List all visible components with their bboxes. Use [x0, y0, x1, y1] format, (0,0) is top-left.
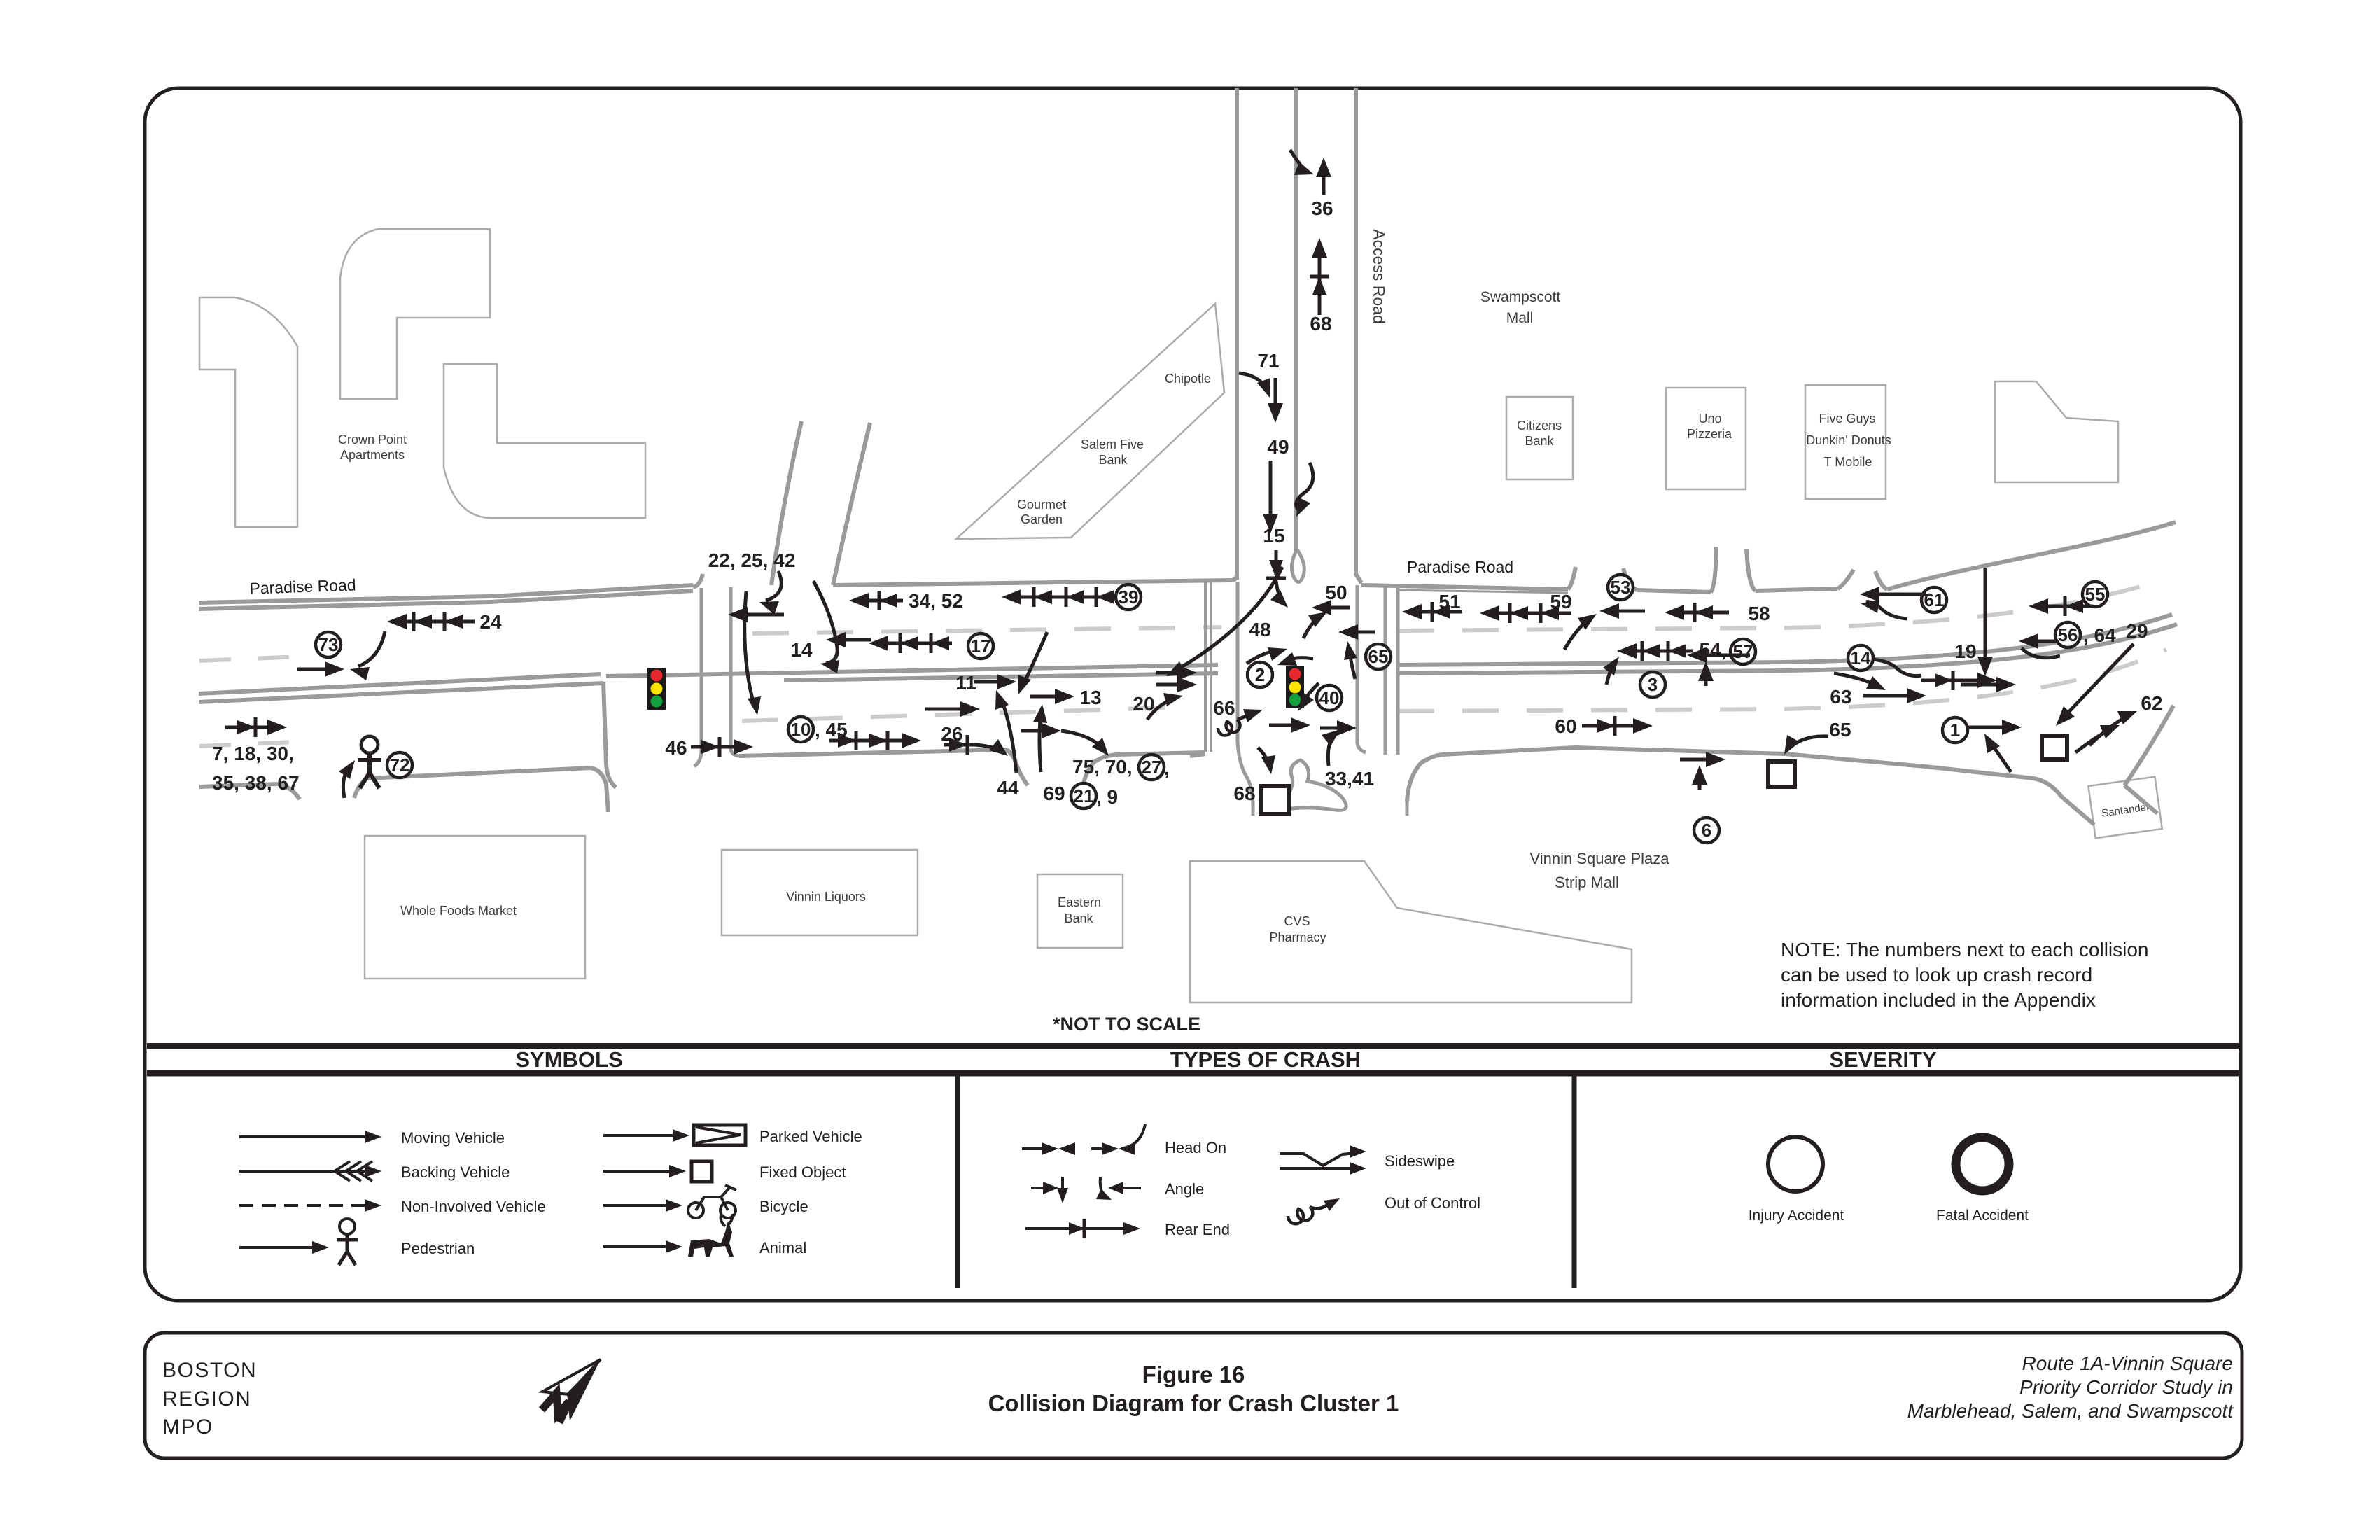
svg-text:53: 53 [1611, 577, 1631, 598]
svg-text:Access Road: Access Road [1370, 229, 1388, 324]
svg-text:Pharmacy: Pharmacy [1269, 930, 1326, 944]
svg-text:10: 10 [791, 719, 811, 740]
svg-text:58: 58 [1748, 603, 1770, 624]
svg-text:Swampscott: Swampscott [1480, 289, 1561, 305]
svg-text:can be used to look up crash r: can be used to look up crash record [1781, 964, 2092, 986]
svg-text:BOSTON: BOSTON [162, 1359, 257, 1382]
svg-text:46: 46 [665, 737, 687, 759]
svg-text:14: 14 [1851, 647, 1871, 668]
svg-text:CVS: CVS [1284, 914, 1310, 928]
svg-text:15: 15 [1263, 525, 1284, 547]
svg-text:59: 59 [1550, 591, 1571, 612]
svg-text:Head On: Head On [1165, 1139, 1226, 1156]
svg-text:65: 65 [1829, 719, 1851, 741]
svg-text:14: 14 [790, 639, 813, 661]
svg-text:49: 49 [1267, 436, 1289, 458]
svg-text:50: 50 [1325, 582, 1347, 603]
svg-text:Pedestrian: Pedestrian [401, 1240, 475, 1257]
svg-text:6: 6 [1702, 820, 1711, 841]
svg-text:61: 61 [1924, 589, 1945, 610]
svg-text:Paradise Road: Paradise Road [249, 575, 356, 597]
svg-text:, 9: , 9 [1096, 786, 1118, 808]
svg-text:39: 39 [1119, 587, 1139, 608]
svg-text:44: 44 [997, 777, 1019, 799]
svg-text:27: 27 [1142, 757, 1162, 778]
svg-text:Citizens: Citizens [1517, 419, 1562, 433]
svg-text:20: 20 [1133, 693, 1154, 715]
svg-text:11: 11 [955, 672, 976, 694]
svg-text:71: 71 [1257, 350, 1279, 372]
svg-text:Bank: Bank [1098, 453, 1128, 467]
svg-text:3: 3 [1648, 674, 1658, 695]
svg-text:Five Guys: Five Guys [1819, 412, 1875, 426]
svg-text:60: 60 [1555, 715, 1576, 737]
svg-text:, 64: , 64 [2083, 624, 2116, 646]
svg-text:22, 25, 42: 22, 25, 42 [708, 549, 796, 571]
svg-text:75, 70,: 75, 70, [1072, 756, 1133, 778]
svg-text:Priority Corridor Study in: Priority Corridor Study in [2019, 1376, 2233, 1398]
svg-text:29: 29 [2126, 620, 2148, 642]
svg-text:1: 1 [1950, 720, 1960, 741]
svg-text:65: 65 [1368, 646, 1389, 667]
svg-text:Dunkin' Donuts: Dunkin' Donuts [1806, 433, 1891, 447]
svg-text:21: 21 [1074, 785, 1094, 806]
svg-text:Angle: Angle [1165, 1180, 1204, 1198]
svg-text:Bank: Bank [1064, 911, 1093, 925]
svg-text:Fatal Accident: Fatal Accident [1936, 1207, 2029, 1224]
svg-text:Collision Diagram for Crash Cl: Collision Diagram for Crash Cluster 1 [988, 1390, 1399, 1416]
svg-text:SEVERITY: SEVERITY [1829, 1047, 1937, 1072]
svg-text:Pizzeria: Pizzeria [1687, 427, 1732, 441]
svg-text:MPO: MPO [162, 1415, 213, 1438]
svg-text:63: 63 [1830, 686, 1851, 708]
svg-text:Whole Foods Market: Whole Foods Market [400, 904, 517, 918]
svg-text:56: 56 [2058, 624, 2078, 645]
svg-text:Non-Involved Vehicle: Non-Involved Vehicle [401, 1198, 546, 1215]
svg-text:Vinnin Liquors: Vinnin Liquors [786, 890, 866, 904]
svg-text:Route 1A-Vinnin Square: Route 1A-Vinnin Square [2022, 1352, 2233, 1374]
svg-text:Backing Vehicle: Backing Vehicle [401, 1163, 510, 1181]
svg-text:TYPES OF CRASH: TYPES OF CRASH [1170, 1047, 1361, 1072]
svg-text:T Mobile: T Mobile [1824, 455, 1872, 469]
svg-text:,: , [1164, 757, 1170, 779]
svg-text:72: 72 [390, 755, 410, 776]
svg-text:Vinnin Square Plaza: Vinnin Square Plaza [1530, 850, 1670, 867]
svg-text:Bicycle: Bicycle [759, 1198, 808, 1215]
svg-text:Parked Vehicle: Parked Vehicle [759, 1128, 862, 1145]
svg-text:2: 2 [1255, 664, 1265, 685]
svg-text:34, 52: 34, 52 [909, 590, 963, 612]
svg-text:Injury Accident: Injury Accident [1749, 1207, 1844, 1224]
svg-text:Gourmet: Gourmet [1017, 498, 1066, 512]
svg-text:information included in the Ap: information included in the Appendix [1781, 989, 2096, 1011]
svg-text:69: 69 [1043, 783, 1065, 804]
svg-text:40: 40 [1319, 687, 1340, 708]
svg-text:Figure 16: Figure 16 [1142, 1361, 1245, 1387]
svg-text:13: 13 [1079, 687, 1101, 708]
svg-text:Chipotle: Chipotle [1165, 372, 1211, 386]
svg-text:Rear End: Rear End [1165, 1221, 1230, 1238]
svg-text:Moving Vehicle: Moving Vehicle [401, 1129, 505, 1147]
svg-text:NOTE: The numbers next to eac: NOTE: The numbers next to each collision [1781, 939, 2149, 960]
svg-text:33,41: 33,41 [1325, 768, 1374, 790]
svg-text:*NOT TO SCALE: *NOT TO SCALE [1053, 1014, 1200, 1035]
svg-text:Bank: Bank [1525, 434, 1554, 448]
svg-text:Apartments: Apartments [340, 448, 405, 462]
svg-text:73: 73 [318, 634, 339, 655]
svg-text:68: 68 [1233, 783, 1255, 804]
svg-text:57: 57 [1733, 641, 1753, 662]
svg-text:66: 66 [1213, 697, 1235, 719]
svg-text:Garden: Garden [1021, 512, 1063, 526]
svg-text:Mall: Mall [1506, 310, 1534, 326]
svg-text:62: 62 [2141, 692, 2162, 714]
svg-text:55: 55 [2085, 584, 2106, 605]
svg-text:Crown Point: Crown Point [338, 433, 407, 447]
svg-text:68: 68 [1310, 313, 1331, 335]
svg-text:Paradise Road: Paradise Road [1407, 558, 1513, 576]
svg-text:SYMBOLS: SYMBOLS [515, 1047, 622, 1072]
svg-text:Strip Mall: Strip Mall [1555, 874, 1619, 891]
svg-text:Eastern: Eastern [1058, 895, 1101, 909]
svg-text:Fixed Object: Fixed Object [759, 1163, 846, 1181]
svg-text:REGION: REGION [162, 1387, 251, 1410]
svg-text:Uno: Uno [1698, 412, 1721, 426]
svg-text:Out of Control: Out of Control [1385, 1194, 1480, 1212]
svg-text:48: 48 [1249, 619, 1270, 640]
svg-text:Marblehead, Salem, and Swampsc: Marblehead, Salem, and Swampscott [1907, 1400, 2234, 1422]
svg-text:51: 51 [1438, 591, 1460, 612]
svg-text:17: 17 [971, 636, 991, 657]
svg-text:7, 18, 30,: 7, 18, 30, [212, 743, 294, 764]
svg-text:Animal: Animal [759, 1239, 806, 1256]
svg-text:Sideswipe: Sideswipe [1385, 1152, 1455, 1170]
svg-text:35, 38, 67: 35, 38, 67 [212, 772, 300, 794]
svg-text:19: 19 [1954, 640, 1976, 662]
svg-text:36: 36 [1311, 197, 1333, 219]
svg-text:Salem Five: Salem Five [1081, 437, 1144, 451]
svg-text:24: 24 [479, 611, 502, 633]
